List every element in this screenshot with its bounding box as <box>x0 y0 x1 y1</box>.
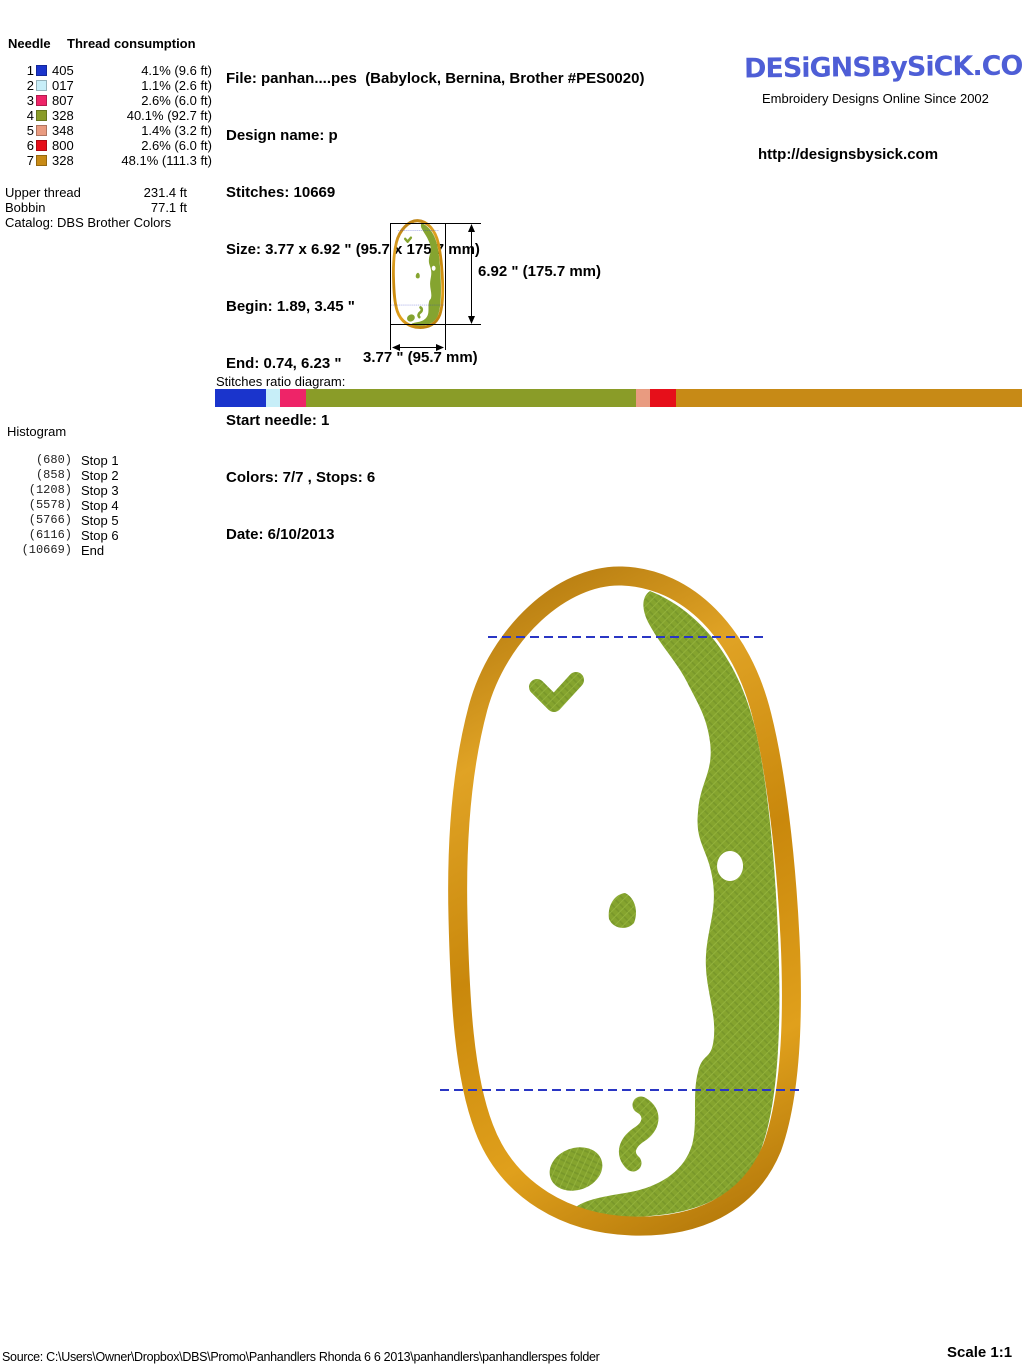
ratio-segment <box>215 389 266 407</box>
table-row: 5 348 1.4% (3.2 ft) <box>8 123 212 138</box>
thread-consumption-value: 1.4% (3.2 ft) <box>94 123 212 138</box>
catalog-line: Catalog: DBS Brother Colors <box>5 215 187 230</box>
thread-consumption-value: 2.6% (6.0 ft) <box>94 93 212 108</box>
stop-label: Stop 6 <box>81 528 119 543</box>
ratio-segment <box>266 389 280 407</box>
needle-table: 1 405 4.1% (9.6 ft) 2 017 1.1% (2.6 ft) … <box>8 63 212 168</box>
histogram-list: (680) Stop 1 (858) Stop 2 (1208) Stop 3 … <box>8 453 119 558</box>
stop-stitch-count: (5578) <box>8 498 72 513</box>
arrow-down-icon <box>468 316 475 324</box>
thread-color-swatch <box>36 155 47 166</box>
thread-code: 807 <box>52 93 94 108</box>
thread-code: 328 <box>52 153 94 168</box>
stop-stitch-count: (10669) <box>8 543 72 558</box>
stop-label: Stop 5 <box>81 513 119 528</box>
needle-number: 4 <box>8 108 34 123</box>
table-row: 1 405 4.1% (9.6 ft) <box>8 63 212 78</box>
size-thumbnail-diagram <box>385 216 490 356</box>
thread-totals: Upper thread 231.4 ft Bobbin 77.1 ft Cat… <box>5 185 187 230</box>
stop-label: Stop 4 <box>81 498 119 513</box>
table-row: 2 017 1.1% (2.6 ft) <box>8 78 212 93</box>
print-preview-page: Needle Thread consumption 1 405 4.1% (9.… <box>0 0 1024 1370</box>
thread-code: 348 <box>52 123 94 138</box>
needle-number: 1 <box>8 63 34 78</box>
stop-label: Stop 3 <box>81 483 119 498</box>
list-item: (680) Stop 1 <box>8 453 119 468</box>
stop-stitch-count: (6116) <box>8 528 72 543</box>
thread-code: 405 <box>52 63 94 78</box>
upper-thread-total: Upper thread 231.4 ft <box>5 185 187 200</box>
thread-color-swatch <box>36 110 47 121</box>
thread-color-swatch <box>36 95 47 106</box>
ratio-segment <box>636 389 650 407</box>
ratio-diagram-label: Stitches ratio diagram: <box>216 374 345 389</box>
thread-consumption-header: Thread consumption <box>67 36 196 51</box>
list-item: (1208) Stop 3 <box>8 483 119 498</box>
list-item: (10669) End <box>8 543 119 558</box>
needle-number: 6 <box>8 138 34 153</box>
total-label: Bobbin <box>5 200 45 215</box>
table-row: 7 328 48.1% (111.3 ft) <box>8 153 212 168</box>
stop-label: Stop 1 <box>81 453 119 468</box>
bobbin-total: Bobbin 77.1 ft <box>5 200 187 215</box>
thread-color-swatch <box>36 140 47 151</box>
table-row: 4 328 40.1% (92.7 ft) <box>8 108 212 123</box>
thread-code: 017 <box>52 78 94 93</box>
thread-consumption-value: 2.6% (6.0 ft) <box>94 138 212 153</box>
arrow-up-icon <box>468 224 475 232</box>
list-item: (5578) Stop 4 <box>8 498 119 513</box>
source-path-line: Source: C:\Users\Owner\Dropbox\DBS\Promo… <box>2 1350 600 1364</box>
table-row: 3 807 2.6% (6.0 ft) <box>8 93 212 108</box>
thread-consumption-value: 1.1% (2.6 ft) <box>94 78 212 93</box>
thread-color-swatch <box>36 125 47 136</box>
table-row: 6 800 2.6% (6.0 ft) <box>8 138 212 153</box>
list-item: (5766) Stop 5 <box>8 513 119 528</box>
list-item: (6116) Stop 6 <box>8 528 119 543</box>
date-line: Date: 6/10/2013 <box>226 525 644 544</box>
thread-code: 800 <box>52 138 94 153</box>
total-label: Upper thread <box>5 185 81 200</box>
total-value: 231.4 ft <box>144 185 187 200</box>
needle-number: 7 <box>8 153 34 168</box>
ratio-segment <box>676 389 1022 407</box>
logo-tagline: Embroidery Designs Online Since 2002 <box>762 91 989 106</box>
stop-label: End <box>81 543 104 558</box>
stop-label: Stop 2 <box>81 468 119 483</box>
scale-label: Scale 1:1 <box>947 1344 1012 1361</box>
needle-column-header: Needle <box>8 36 51 51</box>
thread-color-swatch <box>36 65 47 76</box>
width-dimension-label: 3.77 " (95.7 mm) <box>363 349 478 366</box>
designsbysick-logo: DESiGNSBySiCK.COM <box>744 51 1024 85</box>
needle-number: 3 <box>8 93 34 108</box>
stop-stitch-count: (5766) <box>8 513 72 528</box>
histogram-title: Histogram <box>7 424 66 439</box>
design-preview <box>415 548 825 1254</box>
thread-code: 328 <box>52 108 94 123</box>
stop-stitch-count: (858) <box>8 468 72 483</box>
stop-stitch-count: (680) <box>8 453 72 468</box>
design-name-line: Design name: p <box>226 126 644 145</box>
file-name-line: File: panhan....pes (Babylock, Bernina, … <box>226 69 644 88</box>
height-dimension-label: 6.92 " (175.7 mm) <box>478 263 601 280</box>
site-url[interactable]: http://designsbysick.com <box>758 146 938 163</box>
ratio-segment <box>280 389 306 407</box>
ratio-segment <box>650 389 676 407</box>
extension-lines <box>446 224 481 325</box>
stop-stitch-count: (1208) <box>8 483 72 498</box>
needle-number: 5 <box>8 123 34 138</box>
stitch-count-line: Stitches: 10669 <box>226 183 644 202</box>
thread-consumption-value: 48.1% (111.3 ft) <box>94 153 212 168</box>
colors-stops-line: Colors: 7/7 , Stops: 6 <box>226 468 644 487</box>
list-item: (858) Stop 2 <box>8 468 119 483</box>
ratio-segment <box>306 389 636 407</box>
needle-number: 2 <box>8 78 34 93</box>
thread-color-swatch <box>36 80 47 91</box>
thread-consumption-value: 4.1% (9.6 ft) <box>94 63 212 78</box>
start-needle-line: Start needle: 1 <box>226 411 644 430</box>
stitches-ratio-bar <box>215 389 1022 407</box>
total-value: 77.1 ft <box>151 200 187 215</box>
thread-consumption-value: 40.1% (92.7 ft) <box>94 108 212 123</box>
